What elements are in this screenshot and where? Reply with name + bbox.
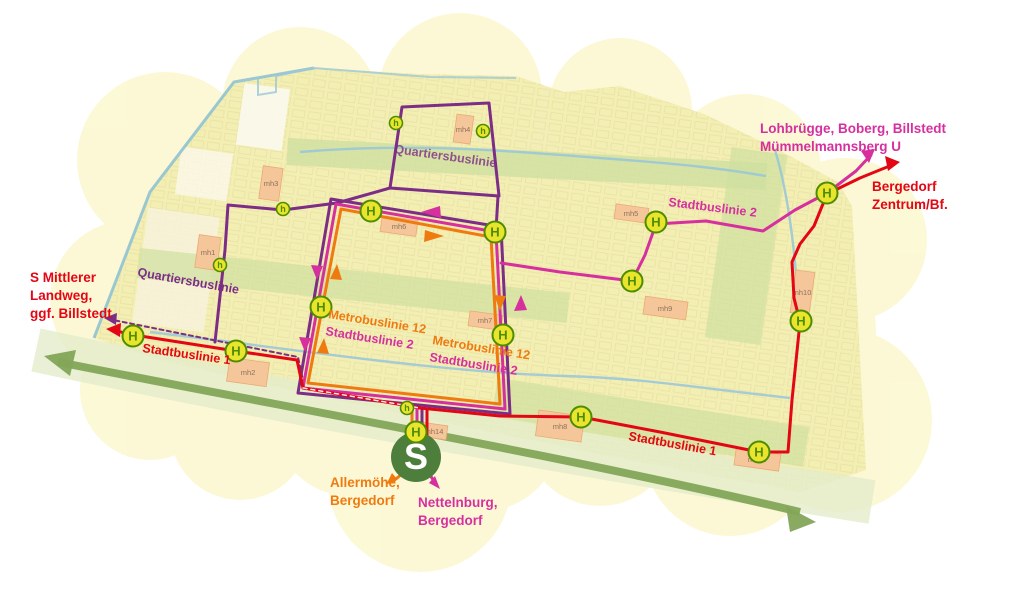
- bus-stop: H: [485, 222, 506, 243]
- svg-text:mh1: mh1: [201, 248, 216, 257]
- svg-text:h: h: [280, 204, 286, 214]
- bus-stop: H: [646, 212, 667, 233]
- bus-stop-small: h: [477, 125, 490, 138]
- svg-text:mh8: mh8: [553, 422, 568, 431]
- svg-text:H: H: [822, 186, 831, 201]
- svg-text:mh2: mh2: [241, 368, 256, 377]
- hub-mh3: mh3: [259, 166, 283, 201]
- svg-text:H: H: [366, 204, 375, 219]
- svg-text:mh3: mh3: [264, 179, 279, 188]
- svg-text:H: H: [651, 215, 660, 230]
- svg-text:mh10: mh10: [793, 288, 812, 297]
- bus-stop: H: [123, 326, 144, 347]
- destination-nettelnburg-line2: Bergedorf: [418, 513, 483, 528]
- svg-text:H: H: [231, 344, 240, 359]
- destination-landweg-line1: S Mittlerer: [30, 270, 97, 285]
- bus-stop-small: h: [277, 203, 290, 216]
- svg-text:h: h: [393, 118, 399, 128]
- bus-stop: H: [406, 422, 427, 443]
- svg-text:H: H: [576, 410, 585, 425]
- svg-text:H: H: [627, 274, 636, 289]
- destination-lohbruegge-line1: Lohbrügge, Boberg, Billstedt: [760, 121, 946, 136]
- svg-text:H: H: [754, 445, 763, 460]
- destination-landweg-line2: Landweg,: [30, 288, 92, 303]
- map-svg: mh1 mh2 mh3 mh4 mh5 mh6 mh7 mh8 mh9 mh10…: [0, 0, 1024, 589]
- bus-stop-small: h: [390, 117, 403, 130]
- svg-text:mh4: mh4: [456, 125, 471, 134]
- svg-text:H: H: [128, 329, 137, 344]
- svg-text:H: H: [498, 328, 507, 343]
- destination-allermoehe-line1: Allermöhe,: [330, 475, 400, 490]
- bus-stop: H: [817, 183, 838, 204]
- bus-stop-small: h: [214, 259, 227, 272]
- bus-stop: H: [571, 407, 592, 428]
- svg-text:H: H: [316, 300, 325, 315]
- hub-mh4: mh4: [453, 114, 474, 144]
- svg-text:H: H: [411, 425, 420, 440]
- bus-stop: H: [791, 311, 812, 332]
- svg-text:H: H: [796, 314, 805, 329]
- stadtbus1-arrowhead-east: [885, 156, 900, 171]
- svg-text:mh9: mh9: [658, 304, 673, 313]
- destination-landweg-line3: ggf. Billstedt: [30, 306, 112, 321]
- svg-text:h: h: [217, 260, 223, 270]
- bus-stop: H: [749, 442, 770, 463]
- destination-bergedorf-line1: Bergedorf: [872, 179, 937, 194]
- destination-bergedorf-line2: Zentrum/Bf.: [872, 197, 948, 212]
- svg-text:h: h: [480, 126, 486, 136]
- svg-text:h: h: [404, 403, 410, 413]
- svg-text:H: H: [490, 225, 499, 240]
- pale-blocks-2: [175, 147, 233, 202]
- bus-stop: H: [361, 201, 382, 222]
- bus-stop: H: [622, 271, 643, 292]
- destination-lohbruegge-line2: Mümmelmannsberg U: [760, 139, 901, 154]
- svg-text:mh7: mh7: [478, 316, 493, 325]
- svg-text:mh6: mh6: [392, 222, 407, 231]
- bus-network-map: mh1 mh2 mh3 mh4 mh5 mh6 mh7 mh8 mh9 mh10…: [0, 0, 1024, 589]
- bus-stop-small: h: [401, 402, 414, 415]
- destination-nettelnburg-line1: Nettelnburg,: [418, 495, 498, 510]
- destination-allermoehe-line2: Bergedorf: [330, 493, 395, 508]
- svg-text:mh5: mh5: [624, 209, 639, 218]
